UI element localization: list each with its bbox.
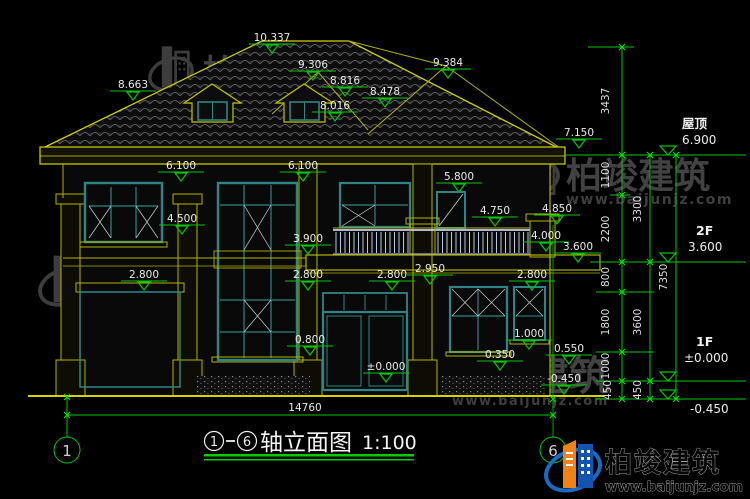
spot-elevation-value: 2.800 [377, 269, 407, 281]
spot-elevation-value: 7.150 [564, 127, 594, 139]
title-underline [204, 454, 414, 457]
drawing-title: 轴立面图 [260, 430, 352, 456]
cad-canvas: 柏竣建筑 www.baijunjz.com 柏竣建筑 www.baijunjz.… [0, 0, 750, 499]
spot-elevation: 9.384 [425, 57, 471, 78]
brand-logo-url: www.baijunjz.com [605, 479, 743, 495]
vertical-dim-value: 450 [632, 380, 644, 400]
vertical-dim-value: 1000 [600, 353, 612, 380]
vertical-dim-value: 3300 [632, 196, 644, 223]
vertical-dim-value: 450 [602, 380, 614, 400]
plinth-texture [440, 376, 545, 396]
spot-elevation-value: 4.850 [542, 203, 572, 215]
axis-number: 1 [62, 442, 72, 460]
level-marker: 2F3.600 [590, 223, 746, 262]
spot-elevation-value: 9.306 [298, 59, 328, 71]
vertical-dimensions: 3437110022008001800100045033003600450735… [600, 88, 670, 400]
spot-elevation-value: 8.663 [118, 79, 148, 91]
level-name: 屋顶 [682, 116, 708, 131]
spot-elevation-value: 0.350 [485, 349, 515, 361]
spot-elevation-value: 3.600 [563, 241, 593, 253]
spot-elevation-value: 8.816 [330, 75, 360, 87]
vertical-dim-value: 3437 [600, 88, 612, 115]
brand-logo-text: 柏竣建筑 [605, 447, 721, 479]
spot-elevation-value: -0.450 [547, 373, 581, 385]
spot-elevation-value: 6.100 [288, 160, 318, 172]
level-value: 6.900 [682, 133, 716, 147]
watermark-brand: 柏竣建筑 [566, 156, 710, 197]
elevation-drawing: 柏竣建筑 www.baijunjz.com 柏竣建筑 www.baijunjz.… [0, 0, 750, 499]
level-marker: -0.450 [596, 390, 746, 416]
plinth-texture [196, 376, 310, 396]
vertical-dim-value: 1800 [600, 309, 612, 336]
level-name: 2F [696, 223, 713, 238]
spot-elevation-value: 1.000 [514, 328, 544, 340]
spot-elevation-value: 6.100 [166, 160, 196, 172]
spot-elevation-value: 5.800 [444, 171, 474, 183]
level-value: 3.600 [688, 240, 722, 254]
spot-elevation-value: 8.478 [370, 86, 400, 98]
level-value: ±0.000 [684, 351, 728, 365]
spot-elevation-value: 0.550 [554, 343, 584, 355]
vertical-dim-value: 7350 [658, 264, 670, 291]
spot-elevation-value: 4.500 [167, 213, 197, 225]
title-axis-end: 6 [243, 435, 251, 450]
spot-elevation-value: 2.800 [517, 269, 547, 281]
level-marker: 1F±0.000 [596, 334, 746, 381]
title-underline-2 [204, 459, 414, 461]
vertical-dim-value: 1100 [600, 162, 612, 189]
spot-elevation-value: 4.000 [531, 230, 561, 242]
spot-elevation: 3.600 [555, 241, 601, 262]
spot-elevation-value: 0.800 [295, 334, 325, 346]
spot-elevation-value: 8.016 [320, 100, 350, 112]
level-name: 1F [696, 334, 713, 349]
vertical-dim-value: 2200 [600, 216, 612, 243]
drawing-scale: 1:100 [362, 432, 417, 454]
axis-bubble-1: 1 [54, 437, 80, 463]
spot-elevation-value: 10.337 [254, 32, 291, 44]
spot-elevation-value: 2.950 [415, 263, 445, 275]
spot-elevation-value: 2.800 [293, 269, 323, 281]
level-value: -0.450 [690, 402, 729, 416]
vertical-dim-value: 3600 [632, 309, 644, 336]
spot-elevation-value: 3.900 [293, 233, 323, 245]
title-axis-start: 1 [210, 435, 218, 450]
spot-elevation-value: 4.750 [480, 205, 510, 217]
spot-elevation-value: ±0.000 [367, 361, 406, 373]
spot-elevation-value: 2.800 [129, 269, 159, 281]
title-block: 1 6 轴立面图 1:100 [204, 430, 417, 461]
overall-dimension: 14760 [288, 402, 321, 414]
spot-elevation: 7.150 [556, 127, 602, 148]
brand-logo: 柏竣建筑 www.baijunjz.com [540, 440, 743, 498]
spot-elevation-value: 9.384 [433, 57, 463, 69]
vertical-dim-value: 800 [600, 267, 612, 287]
